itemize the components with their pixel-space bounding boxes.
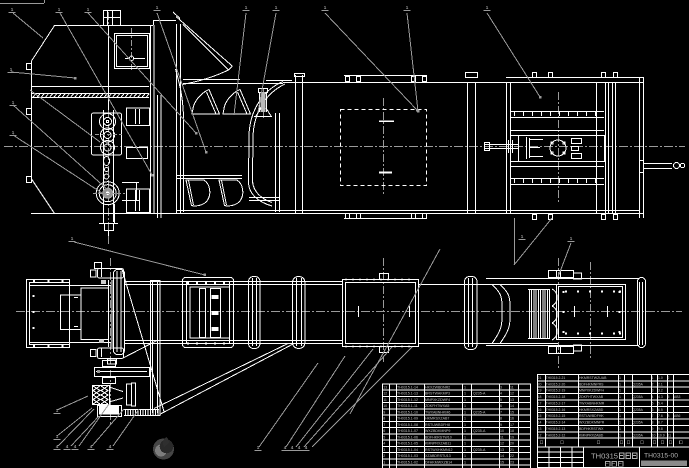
svg-text:TH0315.1-02: TH0315.1-02 [397, 460, 418, 464]
svg-text:19: 19 [538, 389, 542, 393]
svg-text:4: 4 [109, 444, 112, 449]
svg-text:2: 2 [383, 454, 385, 458]
svg-text:17: 17 [538, 401, 542, 405]
svg-text:16: 16 [510, 417, 514, 421]
svg-text:4: 4 [298, 445, 301, 450]
svg-text:TH0315.1-10: TH0315.1-10 [397, 410, 418, 414]
svg-text:BDFHKMNPRS: BDFHKMNPRS [579, 382, 604, 386]
svg-text:BDFHKRSTW10: BDFHKRSTW10 [425, 435, 452, 439]
svg-text:6: 6 [652, 408, 654, 412]
svg-text:18: 18 [538, 395, 542, 399]
svg-text:9: 9 [652, 427, 654, 431]
svg-text:TH0315.1-07: TH0315.1-07 [397, 429, 418, 433]
svg-text:TH0315.2-18: TH0315.2-18 [546, 395, 566, 399]
svg-text:TH0315.2-12: TH0315.2-12 [546, 433, 566, 437]
svg-text:1: 1 [464, 410, 466, 414]
svg-text:1: 1 [652, 376, 654, 380]
svg-text:20: 20 [510, 442, 514, 446]
svg-text:4: 4 [383, 442, 385, 446]
svg-text:BRSTWAKMP3: BRSTWAKMP3 [425, 392, 450, 396]
svg-text:MNPXKZDWFH: MNPXKZDWFH [579, 389, 605, 393]
svg-text:1: 1 [619, 408, 621, 412]
svg-text:TH0315.1-06: TH0315.1-06 [397, 435, 418, 439]
svg-text:TH0315.2-19: TH0315.2-19 [546, 389, 566, 393]
svg-text:TH0315.1-05: TH0315.1-05 [397, 442, 418, 446]
svg-text:1.0: 1.0 [658, 376, 663, 380]
svg-text:4: 4 [74, 444, 77, 449]
svg-text:3: 3 [652, 389, 654, 393]
svg-text:4: 4 [652, 395, 654, 399]
svg-text:5: 5 [500, 398, 502, 402]
svg-text:Q235-A: Q235-A [473, 410, 486, 414]
svg-text:9: 9 [500, 423, 502, 427]
svg-text:1: 1 [619, 376, 621, 380]
svg-text:8: 8 [383, 417, 385, 421]
svg-text:AB6: AB6 [674, 414, 681, 418]
svg-text:KMNPRXZABD: KMNPRXZABD [579, 433, 604, 437]
svg-text:ZDKFHTWXAB: ZDKFHTWXAB [579, 395, 604, 399]
svg-text:13: 13 [383, 386, 387, 390]
svg-text:TWXABNHKMR: TWXABNHKMR [579, 401, 605, 405]
svg-text:6: 6 [500, 404, 502, 408]
svg-text:18: 18 [510, 429, 514, 433]
svg-text:Q235A: Q235A [633, 421, 644, 425]
svg-text:10: 10 [652, 433, 656, 437]
svg-text:1: 1 [619, 433, 621, 437]
svg-text:12: 12 [538, 433, 542, 437]
svg-text:11: 11 [668, 433, 672, 437]
svg-text:6: 6 [383, 429, 385, 433]
svg-text:6.5: 6.5 [658, 408, 663, 412]
svg-text:1: 1 [464, 429, 466, 433]
svg-text:1: 1 [464, 442, 466, 446]
svg-text:21: 21 [510, 448, 514, 452]
svg-text:1: 1 [619, 382, 621, 386]
svg-text:TH0315.1-13: TH0315.1-13 [397, 392, 418, 396]
svg-text:1: 1 [275, 5, 278, 10]
svg-text:BDFHKRSTWX: BDFHKRSTWX [579, 427, 604, 431]
svg-text:TH0315.2-17: TH0315.2-17 [546, 401, 566, 405]
svg-text:2: 2 [668, 376, 670, 380]
svg-text:2: 2 [652, 382, 654, 386]
svg-text:Q235A: Q235A [633, 395, 644, 399]
svg-text:TH0315.2-21: TH0315.2-21 [546, 376, 566, 380]
svg-text:4.3: 4.3 [658, 395, 663, 399]
svg-text:7.6: 7.6 [658, 414, 663, 418]
svg-text:5: 5 [652, 401, 654, 405]
svg-text:1: 1 [464, 398, 466, 402]
svg-text:Q235-A: Q235-A [473, 392, 486, 396]
svg-text:MNPXKZDWF4: MNPXKZDWF4 [425, 398, 450, 402]
svg-text:10.9: 10.9 [658, 433, 665, 437]
svg-text:1: 1 [464, 392, 466, 396]
svg-text:8.7: 8.7 [658, 421, 663, 425]
svg-text:13: 13 [500, 448, 504, 452]
svg-text:1: 1 [12, 130, 15, 135]
svg-text:TH0315: TH0315 [591, 452, 618, 461]
svg-text:WXZBDKMNPR: WXZBDKMNPR [579, 421, 605, 425]
svg-text:1: 1 [619, 414, 621, 418]
svg-text:4: 4 [500, 392, 502, 396]
svg-text:1: 1 [619, 421, 621, 425]
svg-text:Q235-A: Q235-A [473, 429, 486, 433]
svg-text:21: 21 [538, 376, 542, 380]
svg-text:1: 1 [56, 408, 59, 413]
svg-text:1: 1 [464, 423, 466, 427]
svg-text:5.4: 5.4 [658, 401, 663, 405]
svg-text:HKMRSXZABD: HKMRSXZABD [579, 408, 604, 412]
svg-text:15: 15 [538, 414, 542, 418]
svg-text:TH0315.1-11: TH0315.1-11 [397, 404, 418, 408]
svg-text:HKMRSTWZUAB: HKMRSTWZUAB [579, 376, 607, 380]
svg-text:22: 22 [510, 454, 514, 458]
svg-text:TH0315.1-08: TH0315.1-08 [397, 423, 418, 427]
svg-text:1: 1 [245, 5, 248, 10]
svg-text:10: 10 [500, 429, 504, 433]
svg-text:Q235A: Q235A [633, 433, 644, 437]
svg-text:4: 4 [291, 445, 294, 450]
svg-text:13: 13 [538, 427, 542, 431]
svg-text:1: 1 [464, 417, 466, 421]
svg-text:XZABDRSTU13: XZABDRSTU13 [425, 454, 451, 458]
svg-text:1: 1 [464, 404, 466, 408]
svg-text:ZDKFHTWXA5: ZDKFHTWXA5 [425, 404, 449, 408]
svg-text:1: 1 [619, 389, 621, 393]
svg-text:4: 4 [66, 444, 69, 449]
svg-text:3.2: 3.2 [658, 389, 663, 393]
svg-text:TH0315.2-20: TH0315.2-20 [546, 382, 566, 386]
svg-text:1: 1 [521, 234, 524, 239]
svg-text:1: 1 [257, 445, 260, 450]
svg-text:1: 1 [324, 5, 327, 10]
svg-text:TH0315.1-04: TH0315.1-04 [397, 448, 418, 452]
svg-text:HKMRSXZAB7: HKMRSXZAB7 [425, 417, 449, 421]
svg-text:4: 4 [90, 444, 93, 449]
svg-text:8: 8 [652, 421, 654, 425]
svg-text:15: 15 [510, 410, 514, 414]
svg-text:14: 14 [510, 404, 514, 408]
svg-text:20: 20 [538, 382, 542, 386]
svg-text:TH0315.2-13: TH0315.2-13 [546, 427, 566, 431]
svg-text:3: 3 [383, 448, 385, 452]
svg-text:1: 1 [464, 448, 466, 452]
svg-text:19: 19 [510, 435, 514, 439]
svg-text:7: 7 [383, 423, 385, 427]
svg-text:TH0315.1-12: TH0315.1-12 [397, 398, 418, 402]
svg-text:8: 8 [500, 417, 502, 421]
svg-text:1: 1 [58, 7, 61, 12]
svg-text:RSTWXHKMN12: RSTWXHKMN12 [425, 448, 453, 452]
svg-text:TH0315.1-09: TH0315.1-09 [397, 417, 418, 421]
svg-text:TWXABNHKM6: TWXABNHKM6 [425, 410, 450, 414]
svg-text:11: 11 [510, 386, 514, 390]
svg-text:4: 4 [305, 445, 308, 450]
svg-text:1: 1 [619, 401, 621, 405]
svg-text:13: 13 [510, 398, 514, 402]
svg-text:8: 8 [668, 414, 670, 418]
svg-text:5: 5 [668, 395, 670, 399]
svg-text:10: 10 [383, 404, 387, 408]
svg-text:1: 1 [464, 435, 466, 439]
svg-text:TH0315-00: TH0315-00 [644, 453, 678, 460]
svg-text:TH0315.2-16: TH0315.2-16 [546, 408, 566, 412]
svg-text:14: 14 [538, 421, 542, 425]
svg-text:1: 1 [464, 454, 466, 458]
svg-text:14: 14 [500, 454, 504, 458]
svg-text:9.8: 9.8 [658, 427, 663, 431]
svg-text:TH0315.2-14: TH0315.2-14 [546, 421, 566, 425]
svg-text:TH0315.1-14: TH0315.1-14 [397, 386, 418, 390]
svg-text:Q235-A: Q235-A [473, 448, 486, 452]
svg-text:7: 7 [500, 410, 502, 414]
svg-text:2.1: 2.1 [658, 382, 663, 386]
svg-text:1: 1 [486, 5, 489, 10]
svg-text:4: 4 [56, 444, 59, 449]
svg-text:23: 23 [510, 460, 514, 464]
svg-text:Q235A: Q235A [633, 408, 644, 412]
svg-text:1: 1 [570, 236, 573, 241]
svg-text:11: 11 [500, 435, 504, 439]
svg-text:17: 17 [510, 423, 514, 427]
svg-text:1: 1 [11, 7, 14, 12]
svg-text:KMNPRXZAB11: KMNPRXZAB11 [425, 442, 451, 446]
svg-text:12: 12 [510, 392, 514, 396]
svg-text:1: 1 [464, 460, 466, 464]
svg-text:1: 1 [71, 236, 74, 241]
svg-text:1: 1 [619, 395, 621, 399]
svg-text:1: 1 [156, 5, 159, 10]
svg-text:RSTUWBDFH8: RSTUWBDFH8 [425, 423, 450, 427]
svg-text:DFHKMWXZB14: DFHKMWXZB14 [425, 460, 452, 464]
svg-text:11: 11 [383, 398, 387, 402]
svg-text:4: 4 [284, 445, 287, 450]
svg-text:1: 1 [12, 100, 15, 105]
svg-text:1: 1 [383, 460, 385, 464]
svg-text:7: 7 [652, 414, 654, 418]
svg-text:Q235A: Q235A [633, 382, 644, 386]
svg-text:9: 9 [383, 410, 385, 414]
svg-text:12: 12 [500, 442, 504, 446]
svg-text:1: 1 [406, 5, 409, 10]
svg-text:15: 15 [500, 460, 504, 464]
svg-text:1: 1 [619, 427, 621, 431]
svg-text:HKXZWBDNR2: HKXZWBDNR2 [425, 386, 450, 390]
svg-text:3: 3 [500, 386, 502, 390]
svg-text:RSTUWBDFHK: RSTUWBDFHK [579, 414, 604, 418]
svg-text:1: 1 [56, 434, 59, 439]
svg-text:1: 1 [464, 386, 466, 390]
svg-text:TH0315.1-03: TH0315.1-03 [397, 454, 418, 458]
svg-text:WXZBDKMNP9: WXZBDKMNP9 [425, 429, 450, 433]
svg-text:5: 5 [383, 435, 385, 439]
svg-text:16: 16 [538, 408, 542, 412]
svg-text:1: 1 [10, 67, 13, 72]
svg-text:1: 1 [87, 7, 90, 12]
svg-text:AB3: AB3 [674, 395, 681, 399]
svg-text:12: 12 [383, 392, 387, 396]
svg-text:TH0315.2-15: TH0315.2-15 [546, 414, 566, 418]
